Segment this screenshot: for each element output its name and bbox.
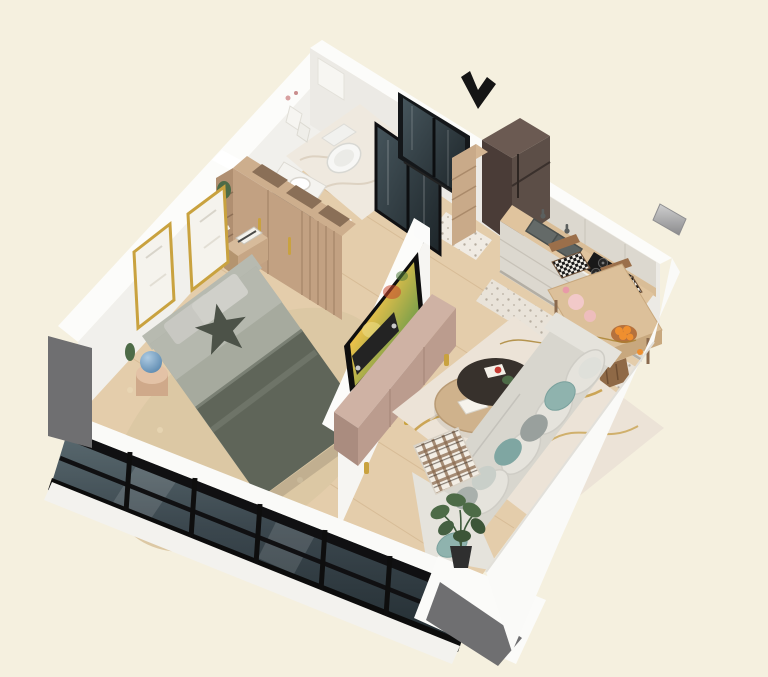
floorplan-render bbox=[0, 0, 768, 677]
shelf-column bbox=[452, 144, 476, 246]
plate-1 bbox=[568, 294, 584, 310]
soundbar-foot-2 bbox=[392, 324, 397, 329]
plate-2 bbox=[584, 310, 596, 322]
card-red-detail bbox=[495, 367, 502, 374]
corner-pillar-left bbox=[48, 336, 92, 448]
cactus bbox=[125, 343, 135, 361]
soundbar-foot-1 bbox=[356, 366, 361, 371]
apartment-3d-scene bbox=[0, 0, 768, 677]
blue-globe bbox=[140, 351, 162, 373]
cup bbox=[563, 287, 570, 294]
